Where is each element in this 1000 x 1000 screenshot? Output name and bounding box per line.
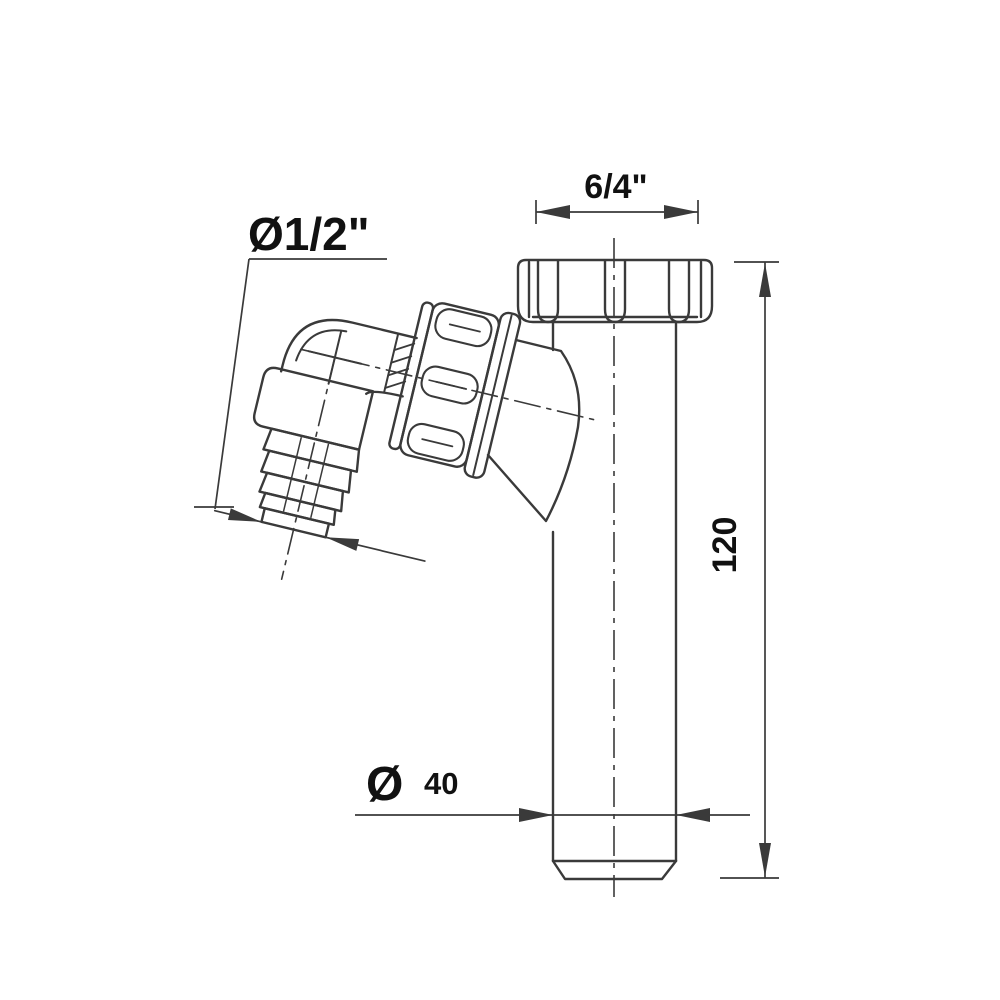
background <box>0 0 1000 1000</box>
tube-length-label: 120 <box>706 517 744 574</box>
hose-diameter-label: Ø1/2" <box>248 208 370 260</box>
thread-size-label: 6/4" <box>584 168 647 206</box>
diameter-value-label: 40 <box>424 766 458 801</box>
diameter-symbol-label: Ø <box>366 758 403 811</box>
drawing-svg: 6/4" 120 Ø 40 Ø1/2" <box>0 0 1000 1000</box>
technical-drawing-canvas: 6/4" 120 Ø 40 Ø1/2" <box>0 0 1000 1000</box>
